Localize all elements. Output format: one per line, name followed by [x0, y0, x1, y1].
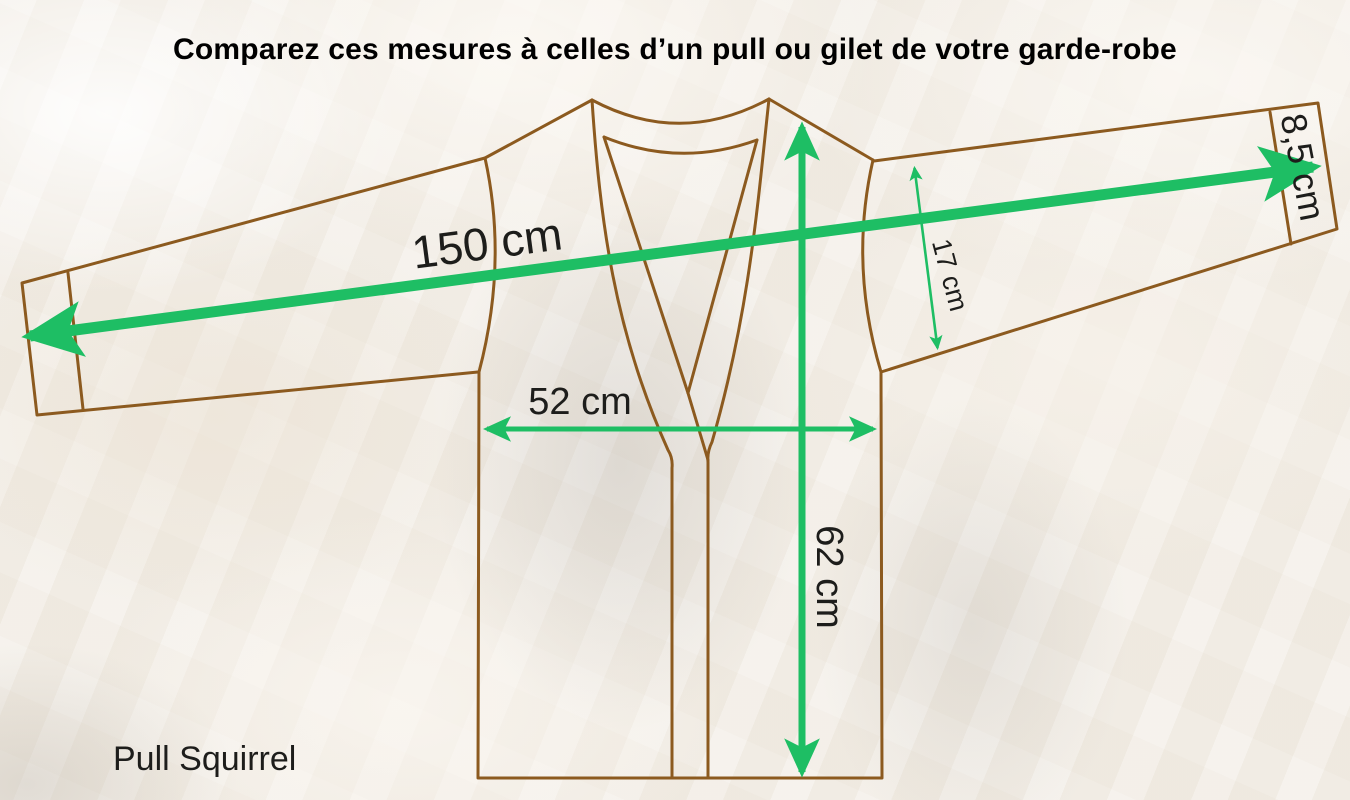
right-armhole-seam — [863, 160, 881, 372]
sleeve-width-label: 17 cm — [926, 236, 974, 315]
product-name-label: Pull Squirrel — [113, 740, 296, 779]
left-cuff-seam — [68, 273, 83, 409]
back-neck-curve — [592, 99, 769, 123]
right-shoulder-seam — [769, 99, 873, 160]
cardigan-outline — [22, 99, 1337, 778]
right-front-band-outer — [708, 99, 769, 778]
left-front-band-outer — [592, 100, 672, 778]
left-front-band-inner — [604, 137, 688, 393]
body-length-label: 62 cm — [808, 525, 850, 628]
right-front-band-inner — [688, 140, 757, 393]
wingspan-arrow — [30, 167, 1313, 336]
right-sleeve-path — [874, 103, 1337, 372]
chest-width-label: 52 cm — [528, 381, 631, 423]
collar-inner-curve — [604, 137, 757, 153]
left-shoulder-seam — [485, 100, 592, 158]
size-guide-graphic: Comparez ces mesures à celles d’un pull … — [0, 0, 1350, 800]
measurement-diagram: 150 cm 52 cm 62 cm 17 cm 8,5 cm — [0, 0, 1350, 800]
